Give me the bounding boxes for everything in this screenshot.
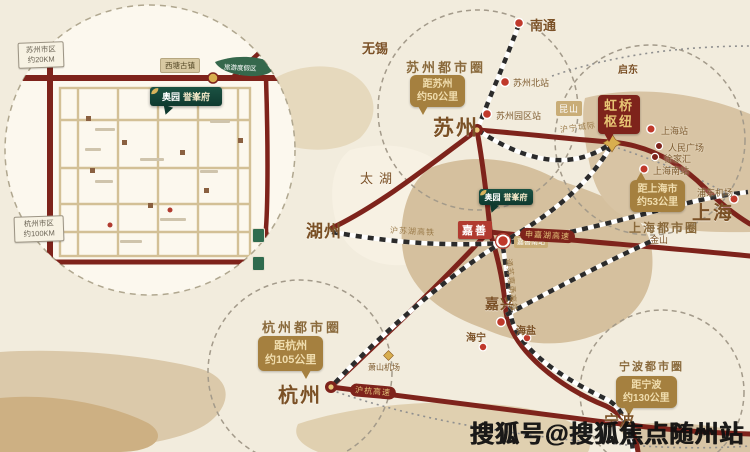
callout-line: 距宁波 <box>623 379 670 392</box>
callout-line: 约53公里 <box>637 196 678 209</box>
xujiahui-dot <box>651 153 658 160</box>
project-brand: 奥园 <box>162 90 180 103</box>
inset-sign-hangzhou: 杭州市区 约100KM <box>14 215 65 243</box>
shanghai-distance-callout: 距上海市 约53公里 <box>630 180 685 212</box>
city-suzhou: 苏州 <box>433 112 479 142</box>
project-logo: 奥园 誉峯府 <box>479 189 533 205</box>
location-map: 苏州都市圈 上海都市圈 杭州都市圈 宁波都市圈 距苏州 约50公里 距上海市 约… <box>0 0 750 452</box>
suzhou-park-station-dot <box>483 110 492 119</box>
city-kunshan: 昆山 <box>556 101 582 116</box>
suzhou-park-station-label: 苏州园区站 <box>496 109 541 122</box>
ningbo-metro-label: 宁波都市圈 <box>619 358 684 374</box>
suzhou-distance-callout: 距苏州 约50公里 <box>410 75 465 107</box>
inset-park-label: 旅游度假区 <box>224 61 257 73</box>
city-huzhou: 湖州 <box>306 217 342 242</box>
jiashan-town-box: 嘉善 <box>458 221 492 239</box>
jiashan-south-station-dot <box>497 235 508 246</box>
road-shield-icon <box>252 256 265 271</box>
xiaoshan-airport-label: 萧山机场 <box>368 362 400 373</box>
hangzhou-metro-label: 杭州都市圈 <box>262 317 342 336</box>
hangzhou-junction-dot <box>328 384 333 389</box>
inset-xitang-tag: 西塘古镇 <box>160 58 200 73</box>
pudong-airport-label: 浦东机场 <box>697 186 733 199</box>
jiaxing-station-dot <box>497 318 506 327</box>
city-jinshan: 金山 <box>650 233 668 246</box>
hub-line: 枢纽 <box>604 114 634 130</box>
callout-line: 距苏州 <box>417 78 458 91</box>
hub-tail <box>604 133 614 142</box>
city-qidong: 启东 <box>618 61 638 76</box>
callout-line: 距杭州 <box>265 339 316 353</box>
suzhou-north-station-label: 苏州北站 <box>513 76 549 89</box>
nantong-dot <box>515 19 524 28</box>
haining-dot <box>479 343 487 351</box>
city-hangzhou: 杭州 <box>278 379 322 408</box>
city-haiyan: 海盐 <box>516 322 536 337</box>
sign-line: 约100KM <box>17 228 61 240</box>
peoples-square-dot <box>655 142 662 149</box>
callout-line: 约130公里 <box>623 392 670 405</box>
shanghai-station-label: 上海站 <box>661 124 688 137</box>
city-haining: 海宁 <box>466 329 486 344</box>
hongqiao-hub-box: 虹桥 枢纽 <box>598 95 640 134</box>
leaf-icon <box>150 87 159 96</box>
hangzhou-distance-callout: 距杭州 约105公里 <box>258 336 323 371</box>
callout-line: 约105公里 <box>265 353 316 367</box>
project-name: 誉峯府 <box>504 192 528 203</box>
suzhou-north-station-dot <box>501 78 510 87</box>
callout-tail <box>301 370 311 379</box>
inset-interchange-dot <box>208 73 218 83</box>
callout-tail <box>636 172 646 181</box>
callout-line: 约50公里 <box>417 91 458 104</box>
shanghai-south-station-label: 上海南站 <box>653 164 689 177</box>
project-name: 誉峯府 <box>183 90 210 103</box>
inset-sign-suzhou: 苏州市区 约20KM <box>18 41 65 69</box>
sign-line: 约20KM <box>21 54 61 66</box>
callout-line: 距上海市 <box>637 183 678 196</box>
city-shanghai: 上海 <box>692 198 734 225</box>
city-wuxi: 无锡 <box>362 38 388 57</box>
city-nantong: 南通 <box>530 15 556 34</box>
ningbo-distance-callout: 距宁波 约130公里 <box>616 376 677 408</box>
leaf-icon <box>479 189 487 197</box>
shanghai-station-dot <box>647 125 655 133</box>
suzhou-metro-label: 苏州都市圈 <box>406 57 486 76</box>
inset-project-logo: 奥园 誉峯府 <box>150 87 222 106</box>
husuhu-rail-label: 沪苏湖高铁 <box>390 225 436 238</box>
hub-line: 虹桥 <box>604 98 634 114</box>
taihu-lake-label: 太湖 <box>360 168 398 187</box>
watermark: 搜狐号@搜狐焦点随州站 <box>470 414 744 449</box>
road-shield-icon <box>252 228 265 243</box>
callout-tail <box>418 106 428 115</box>
